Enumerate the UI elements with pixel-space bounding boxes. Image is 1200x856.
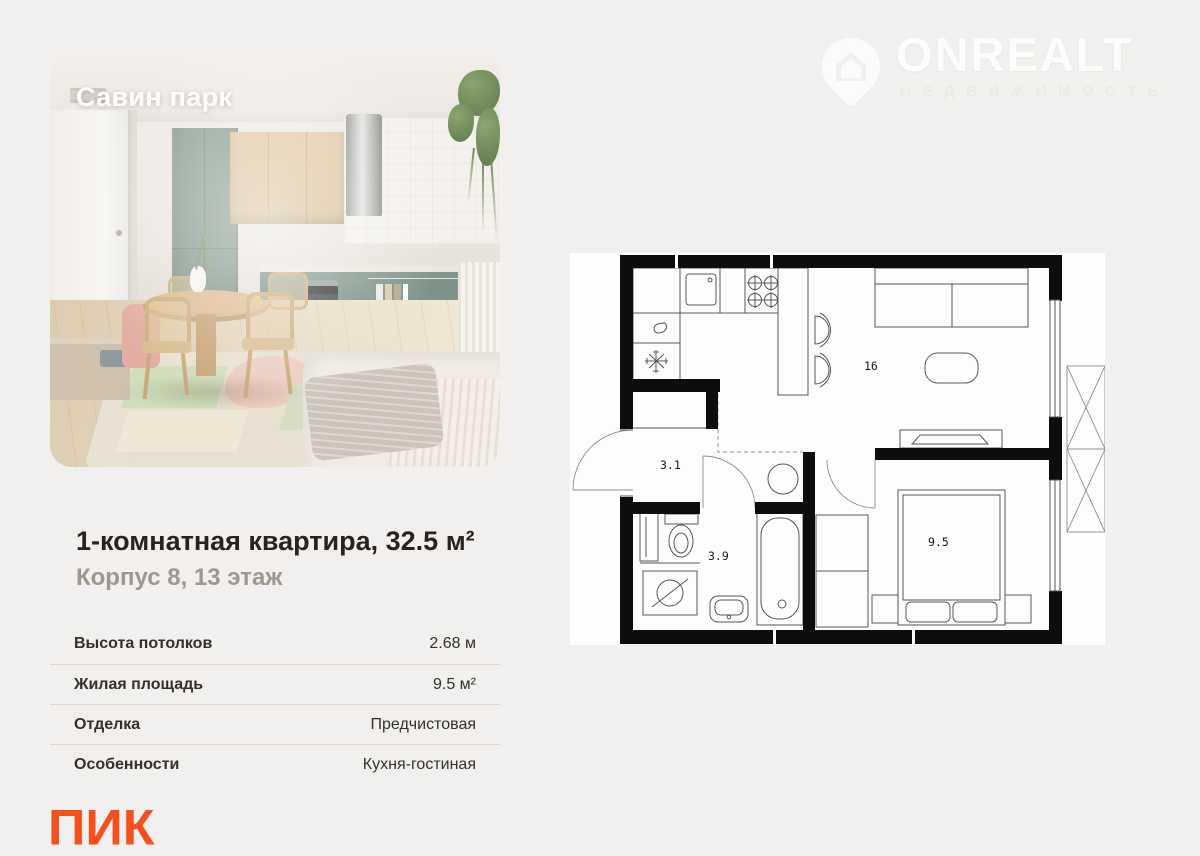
bedroom-furniture	[816, 490, 1031, 627]
nightstand	[1005, 595, 1031, 623]
room-label-hallway: 3.1	[660, 458, 681, 472]
bathroom-door	[703, 456, 755, 508]
watermark-brand: ONREALT	[896, 30, 1170, 80]
bar-chair	[815, 353, 831, 387]
entrance-door	[573, 430, 633, 490]
listing-title: 1-комнатная квартира, 32.5 м²	[76, 526, 475, 557]
spec-table: Высота потолков 2.68 м Жилая площадь 9.5…	[50, 624, 500, 784]
room-label-kitchen-living: 16	[864, 359, 878, 373]
room-label-bathroom: 3.9	[708, 549, 729, 563]
floorplan-image[interactable]: 16 3.1 3.9 9.5	[570, 253, 1105, 645]
spec-value: 2.68 м	[429, 635, 476, 653]
tv-stand	[900, 430, 1002, 448]
kitchen-fixtures	[633, 268, 831, 395]
toilet-tank	[665, 514, 698, 524]
bar-chair	[815, 313, 831, 347]
water-heater	[768, 464, 798, 494]
map-pin-house-icon	[810, 26, 892, 108]
spec-label: Особенности	[74, 756, 179, 774]
bar-counter	[778, 268, 808, 395]
bathroom-fixtures	[640, 464, 803, 625]
toilet	[669, 525, 693, 557]
apartment-photo[interactable]: Савин парк	[50, 52, 500, 467]
pik-developer-logo: ПИК	[48, 804, 155, 852]
pillow	[953, 602, 997, 622]
listing-subtitle: Корпус 8, 13 этаж	[76, 564, 282, 592]
floorplan-svg: 16 3.1 3.9 9.5	[570, 253, 1105, 645]
interior-photo-scene: Савин парк	[50, 52, 500, 467]
listing-page: { "watermark": { "brand": "ONREALT", "su…	[0, 0, 1200, 850]
spec-row-living-area: Жилая площадь 9.5 м²	[50, 664, 500, 704]
spec-row-finish: Отделка Предчистовая	[50, 704, 500, 744]
vanity	[640, 513, 658, 561]
living-room-furniture	[875, 268, 1028, 448]
coffee-table	[925, 353, 978, 383]
spec-row-features: Особенности Кухня-гостиная	[50, 744, 500, 784]
nightstand	[872, 595, 898, 623]
project-name: Савин парк	[76, 82, 232, 113]
spec-label: Высота потолков	[74, 635, 212, 653]
spec-row-ceiling-height: Высота потолков 2.68 м	[50, 624, 500, 664]
spec-label: Отделка	[74, 716, 140, 734]
room-label-bedroom: 9.5	[928, 535, 949, 549]
bedroom-door	[827, 460, 875, 508]
spec-label: Жилая площадь	[74, 676, 203, 694]
onrealt-watermark: ONREALT НЕДВИЖИМОСТЬ	[822, 30, 1192, 116]
spec-value: Предчистовая	[371, 716, 476, 734]
spec-value: Кухня-гостиная	[363, 756, 476, 774]
spec-value: 9.5 м²	[433, 676, 476, 694]
bathtub	[757, 512, 803, 625]
watermark-subtitle: НЕДВИЖИМОСТЬ	[900, 83, 1170, 100]
ac-basket	[1067, 366, 1105, 532]
pillow	[906, 602, 950, 622]
